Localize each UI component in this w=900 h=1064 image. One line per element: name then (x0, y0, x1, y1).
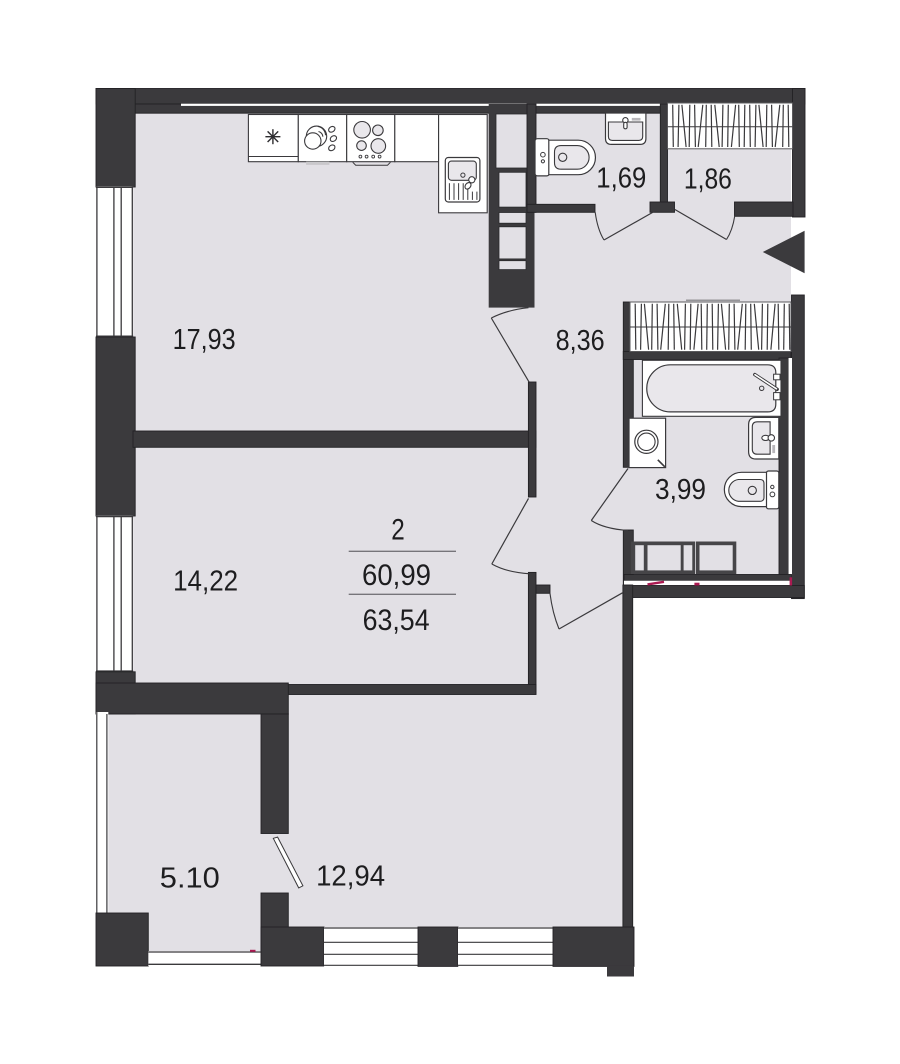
svg-text:5.10: 5.10 (160, 862, 220, 894)
svg-text:8,36: 8,36 (556, 325, 605, 357)
svg-text:60,99: 60,99 (362, 559, 431, 592)
svg-text:2: 2 (391, 514, 405, 547)
svg-text:17,93: 17,93 (173, 324, 236, 356)
svg-text:12,94: 12,94 (316, 861, 385, 893)
svg-text:3,99: 3,99 (655, 474, 706, 506)
svg-text:1,69: 1,69 (596, 163, 646, 195)
svg-text:1,86: 1,86 (684, 164, 732, 196)
svg-text:14,22: 14,22 (173, 565, 238, 597)
svg-text:63,54: 63,54 (363, 604, 430, 637)
